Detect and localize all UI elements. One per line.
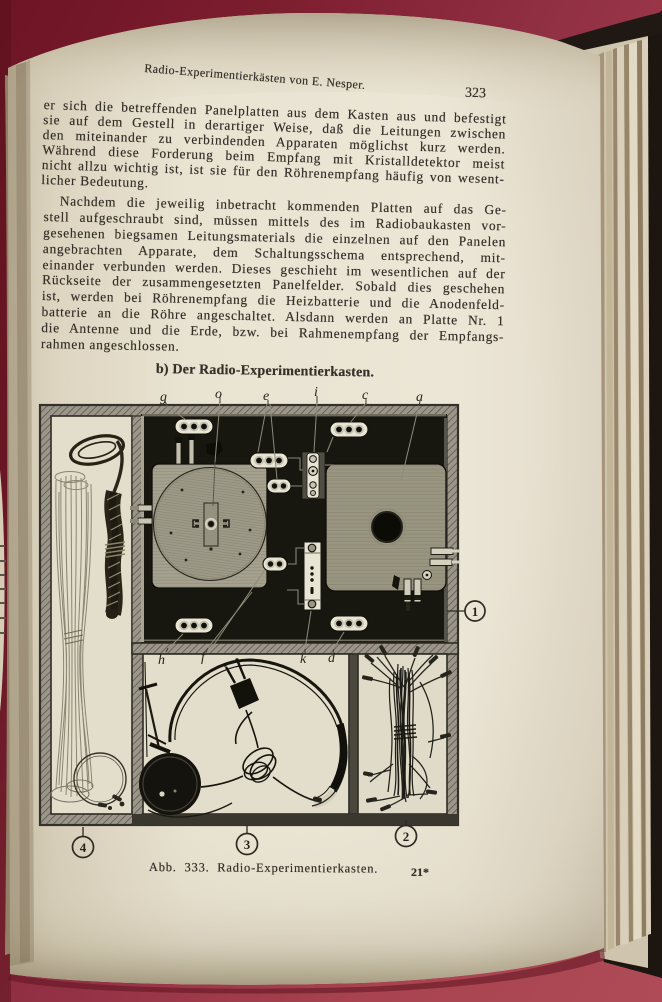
svg-text:h: h	[158, 653, 165, 668]
svg-text:o: o	[215, 387, 222, 402]
svg-text:1: 1	[472, 604, 479, 619]
svg-text:c: c	[362, 388, 369, 403]
svg-text:i: i	[314, 385, 318, 400]
svg-text:g: g	[160, 390, 167, 405]
svg-text:k: k	[300, 652, 307, 667]
svg-text:4: 4	[80, 840, 87, 855]
svg-text:3: 3	[244, 837, 251, 852]
svg-text:d: d	[328, 651, 336, 666]
svg-text:a: a	[416, 390, 423, 405]
svg-text:e: e	[263, 389, 269, 404]
svg-text:2: 2	[403, 829, 410, 844]
